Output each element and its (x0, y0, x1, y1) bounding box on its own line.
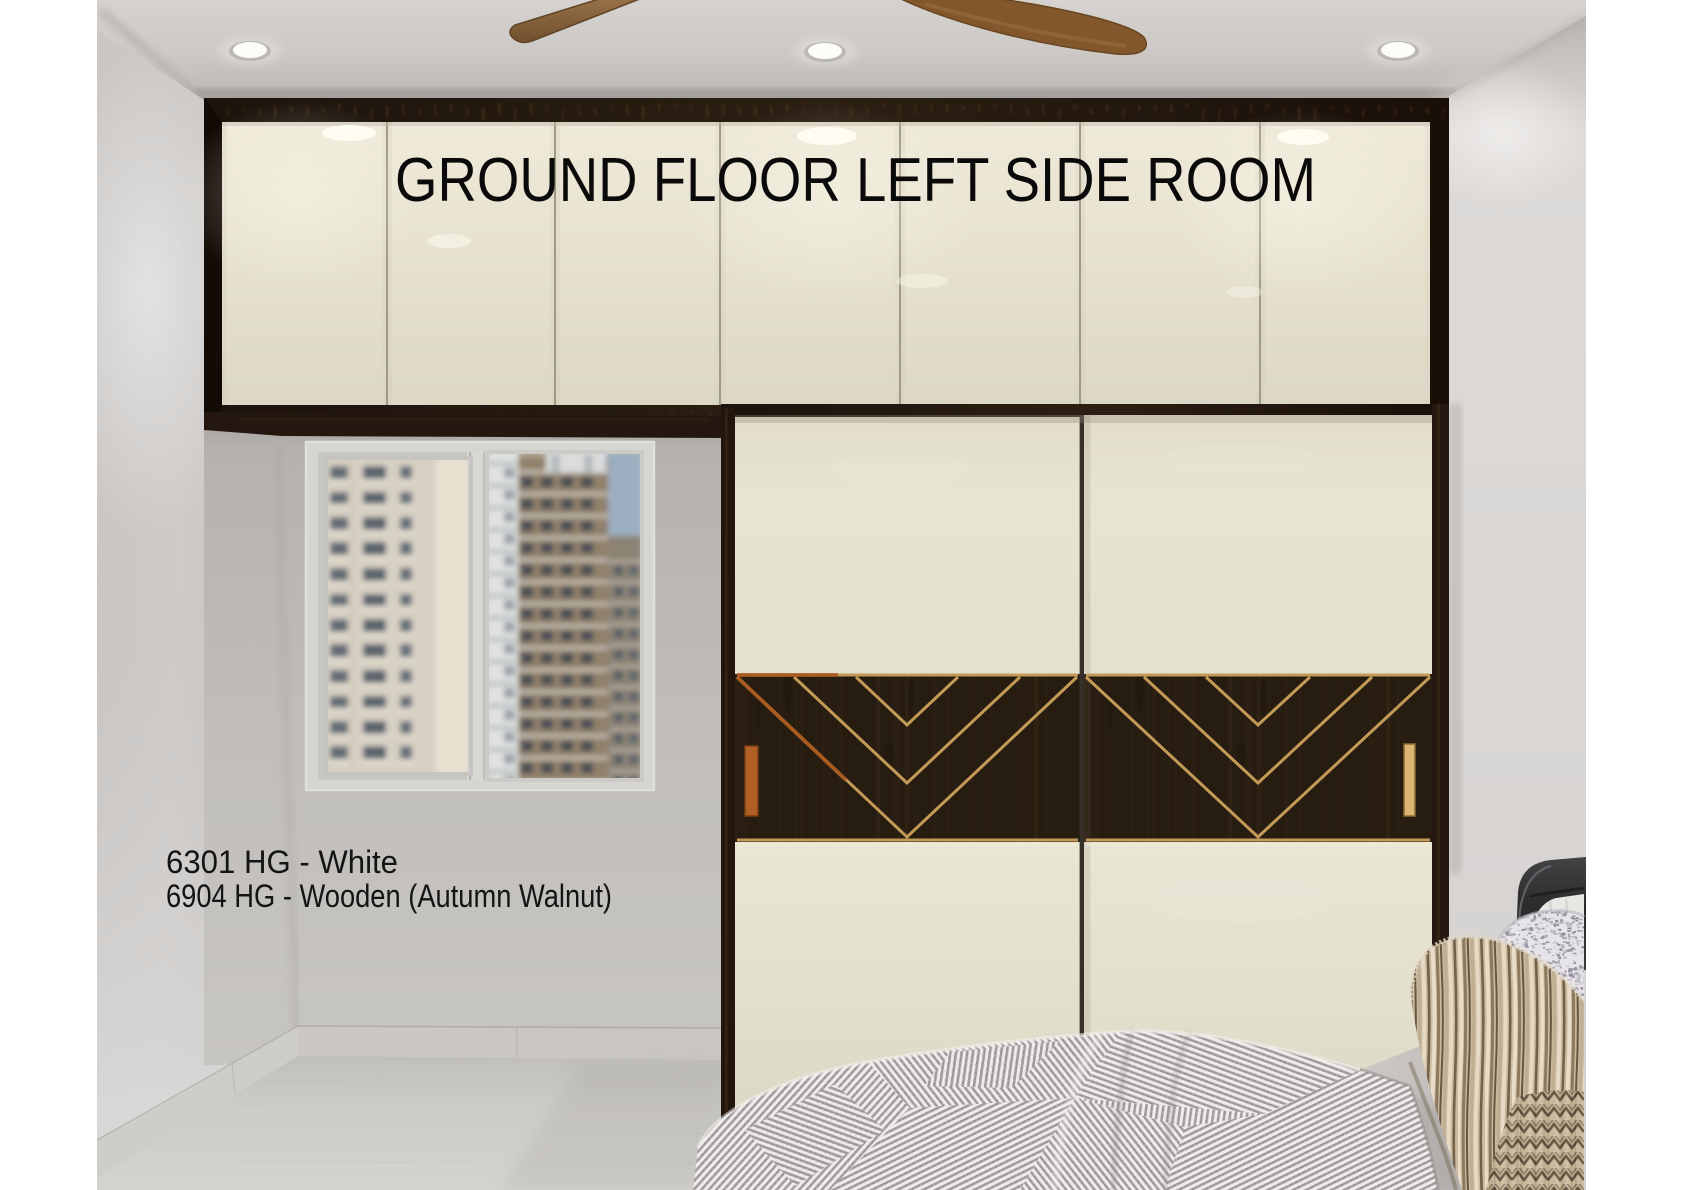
svg-text:GROUND FLOOR LEFT SIDE ROOM: GROUND FLOOR LEFT SIDE ROOM (395, 146, 1316, 215)
svg-text:6301 HG - White: 6301 HG - White (166, 844, 398, 880)
svg-text:6904 HG - Wooden (Autumn Walnu: 6904 HG - Wooden (Autumn Walnut) (166, 878, 612, 914)
